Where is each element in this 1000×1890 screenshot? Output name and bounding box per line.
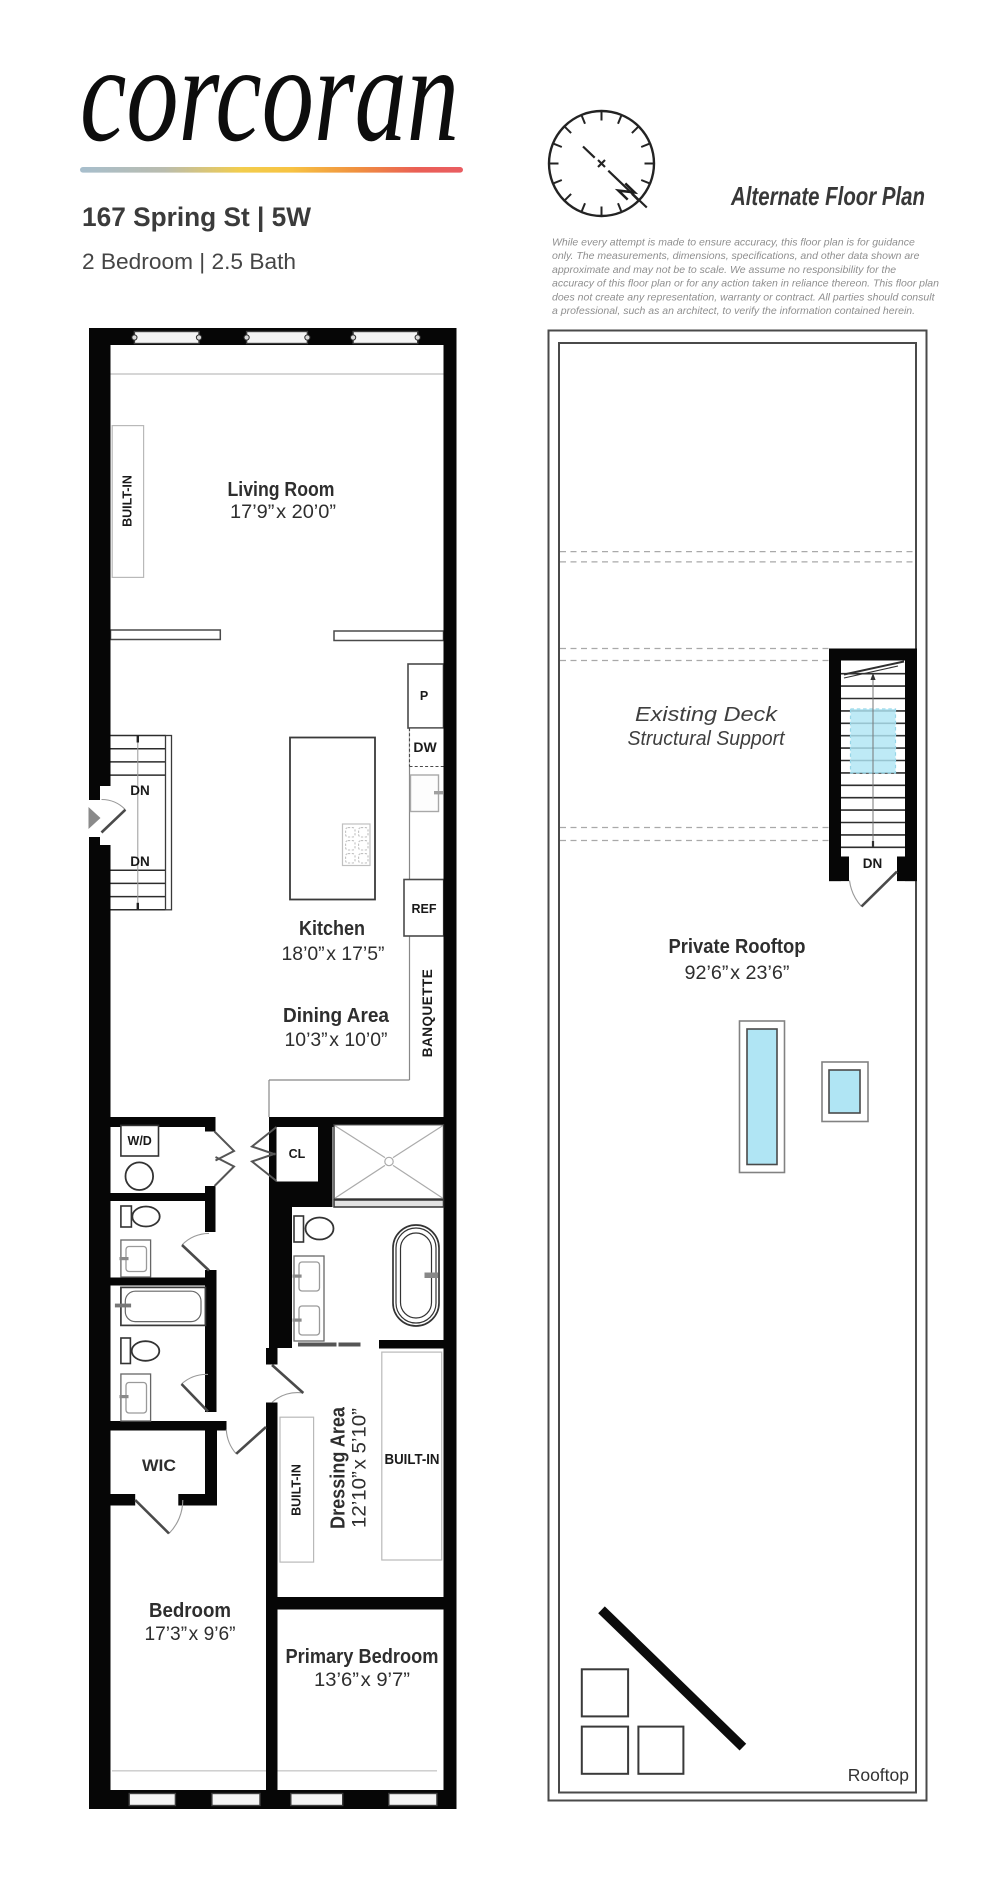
svg-text:17’3” x 9’6”: 17’3” x 9’6” — [145, 1624, 236, 1645]
svg-text:does not create any representa: does not create any representation, warr… — [552, 291, 936, 303]
svg-text:Bedroom: Bedroom — [149, 1599, 231, 1622]
svg-text:approximate and may not be to: approximate and may not be to scale. We … — [552, 264, 896, 276]
svg-text:DW: DW — [413, 739, 437, 755]
svg-text:Alternate Floor Plan: Alternate Floor Plan — [730, 181, 925, 211]
svg-text:167 Spring St | 5W: 167 Spring St | 5W — [82, 202, 311, 232]
svg-text:WIC: WIC — [142, 1457, 176, 1475]
svg-text:CL: CL — [289, 1147, 306, 1161]
svg-text:BUILT-IN: BUILT-IN — [385, 1452, 440, 1468]
svg-text:Dining Area: Dining Area — [283, 1004, 390, 1027]
svg-text:10’3” x 10’0”: 10’3” x 10’0” — [285, 1030, 388, 1051]
svg-text:Dressing Area: Dressing Area — [327, 1406, 350, 1529]
svg-text:DN: DN — [130, 854, 150, 869]
svg-text:BUILT-IN: BUILT-IN — [121, 475, 135, 527]
svg-text:REF: REF — [412, 902, 437, 916]
svg-text:a professional, such as an arc: a professional, such as an architect, to… — [552, 305, 915, 317]
svg-text:BUILT-IN: BUILT-IN — [290, 1464, 304, 1516]
svg-text:BANQUETTE: BANQUETTE — [420, 969, 435, 1058]
svg-text:P: P — [420, 689, 428, 703]
svg-text:Living Room: Living Room — [228, 478, 335, 501]
svg-text:accuracy of this floor plan or: accuracy of this floor plan or for any a… — [552, 278, 939, 290]
svg-text:Primary Bedroom: Primary Bedroom — [286, 1645, 439, 1668]
svg-text:While every attempt is made to: While every attempt is made to ensure ac… — [552, 237, 915, 249]
svg-text:92’6” x 23’6”: 92’6” x 23’6” — [685, 963, 790, 984]
svg-text:17’9” x 20’0”: 17’9” x 20’0” — [230, 502, 336, 523]
svg-text:Kitchen: Kitchen — [299, 917, 365, 940]
svg-text:13’6” x 9’7”: 13’6” x 9’7” — [314, 1670, 410, 1691]
svg-text:corcoran: corcoran — [80, 17, 459, 170]
svg-text:W/D: W/D — [128, 1134, 152, 1148]
svg-text:Rooftop: Rooftop — [848, 1765, 909, 1785]
svg-text:DN: DN — [130, 783, 150, 798]
svg-text:DN: DN — [863, 856, 883, 871]
svg-text:12’10” x 5’10”: 12’10” x 5’10” — [350, 1408, 371, 1528]
svg-text:Structural Support: Structural Support — [628, 728, 786, 750]
svg-text:18’0” x 17’5”: 18’0” x 17’5” — [282, 944, 385, 965]
svg-text:Existing Deck: Existing Deck — [635, 704, 778, 726]
svg-text:Private Rooftop: Private Rooftop — [669, 935, 806, 958]
svg-text:only. The measurements, dimens: only. The measurements, dimensions, spec… — [552, 250, 920, 262]
svg-text:2 Bedroom | 2.5 Bath: 2 Bedroom | 2.5 Bath — [82, 249, 296, 274]
